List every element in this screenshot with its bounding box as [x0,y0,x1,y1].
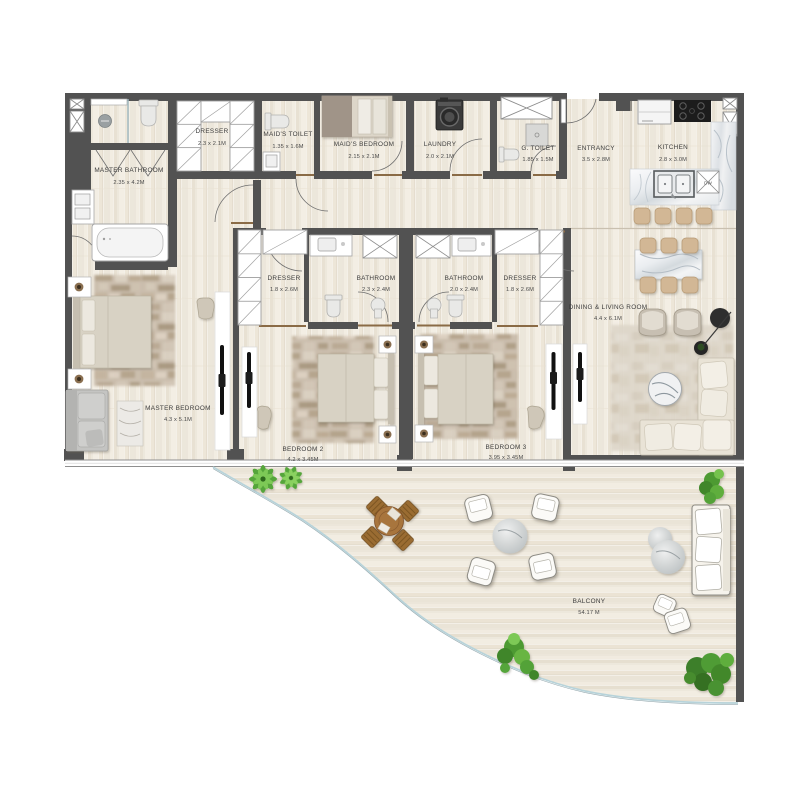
svg-text:BATHROOM: BATHROOM [445,275,484,282]
svg-text:BEDROOM 3: BEDROOM 3 [485,444,526,451]
svg-text:DRESSER: DRESSER [268,275,301,282]
svg-text:DRESSER: DRESSER [196,128,229,135]
svg-text:BALCONY: BALCONY [573,598,606,605]
svg-text:MAID'S TOILET: MAID'S TOILET [263,131,312,138]
svg-text:DINING & LIVING ROOM: DINING & LIVING ROOM [569,304,648,311]
svg-text:G. TOILET: G. TOILET [521,145,554,152]
svg-text:1.85 x 1.5M: 1.85 x 1.5M [522,157,553,163]
svg-text:1.8 x 2.6M: 1.8 x 2.6M [270,287,298,293]
svg-text:1.8 x 2.6M: 1.8 x 2.6M [506,287,534,293]
svg-text:MASTER BEDROOM: MASTER BEDROOM [145,405,211,412]
svg-text:4.4 x 6.1M: 4.4 x 6.1M [594,316,622,322]
svg-text:BATHROOM: BATHROOM [357,275,396,282]
svg-text:3.95 x 3.45M: 3.95 x 3.45M [489,455,524,461]
svg-text:3.5 x 2.8M: 3.5 x 2.8M [582,157,610,163]
svg-text:MAID'S BEDROOM: MAID'S BEDROOM [334,141,394,148]
svg-text:2.0 x 2.1M: 2.0 x 2.1M [426,154,454,160]
svg-text:2.0 x 2.4M: 2.0 x 2.4M [450,287,478,293]
svg-text:2.3 x 2.1M: 2.3 x 2.1M [198,141,226,147]
svg-text:DRESSER: DRESSER [504,275,537,282]
svg-text:BEDROOM 2: BEDROOM 2 [282,446,323,453]
svg-text:LAUNDRY: LAUNDRY [424,141,457,148]
svg-text:DW: DW [704,181,712,186]
svg-text:4.2 x 3.45M: 4.2 x 3.45M [287,457,318,463]
svg-text:2.8 x 3.0M: 2.8 x 3.0M [659,157,687,163]
svg-text:KITCHEN: KITCHEN [658,144,688,151]
svg-text:MASTER BATHROOM: MASTER BATHROOM [94,167,163,174]
svg-text:ENTRANCY: ENTRANCY [577,145,615,152]
svg-text:1.35 x 1.6M: 1.35 x 1.6M [272,144,303,150]
svg-text:2.3 x 2.4M: 2.3 x 2.4M [362,287,390,293]
svg-text:4.3 x 5.1M: 4.3 x 5.1M [164,417,192,423]
svg-text:2.15 x 2.1M: 2.15 x 2.1M [348,154,379,160]
svg-text:54.17 M: 54.17 M [578,610,600,616]
svg-text:2.35 x 4.2M: 2.35 x 4.2M [113,180,144,186]
